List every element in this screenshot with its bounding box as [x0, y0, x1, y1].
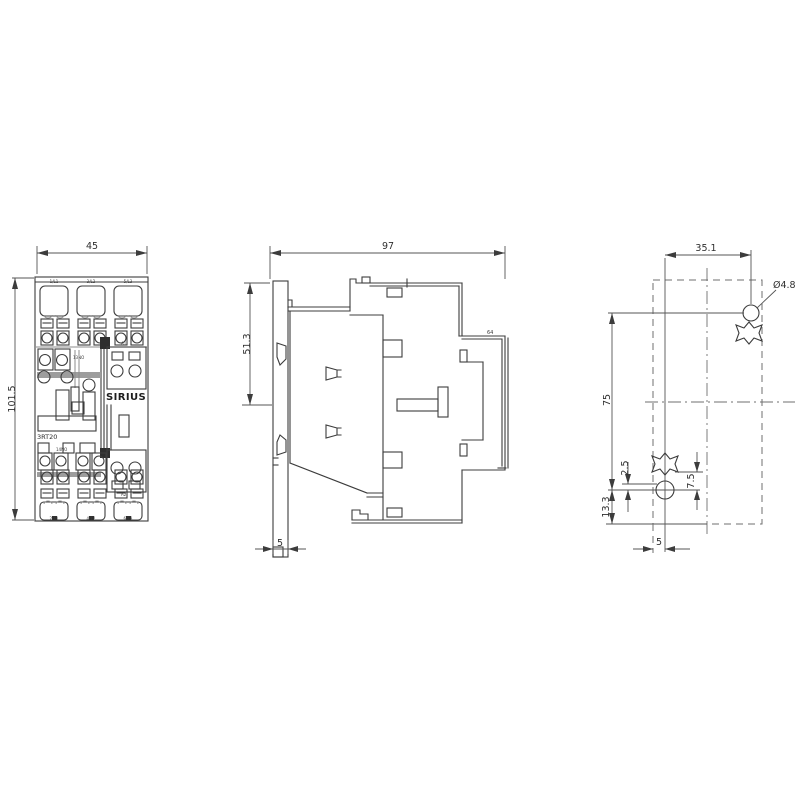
drilling-pattern: 35.1 Ø4.8 75 13.3 [601, 243, 796, 553]
drill-dim-top: 35.1 [665, 243, 751, 304]
keyhole-top [736, 305, 762, 344]
front-top-screws [41, 319, 143, 328]
side-dim-plate: 5 [255, 538, 306, 554]
dim-label-dia: Ø4.8 [773, 280, 796, 291]
front-dim-height: 101.5 [7, 278, 34, 520]
dim-label-depth: 97 [382, 241, 394, 252]
drill-dim-bottom: 13.3 [601, 490, 707, 524]
drill-dim-slot-b: 7.5 [675, 452, 703, 510]
drill-dim-edge: 5 [633, 524, 690, 553]
dim-label-width: 45 [86, 241, 98, 252]
coil-label-a1: A1 [121, 341, 127, 346]
drill-dim-slot-a: 2.5 [620, 460, 657, 512]
drill-hole-callout: Ø4.8 [757, 280, 796, 308]
side-dim-depth: 97 [270, 241, 505, 279]
dim-label-35-1: 35.1 [695, 243, 716, 254]
terminal-label-2T1: 2/T1 [50, 516, 59, 521]
front-bottom-terminals: 2/T1 4/T2 6/T3 [40, 470, 143, 521]
terminal-label-3L2: 3/L2 [87, 279, 96, 284]
front-top-clamps [41, 331, 143, 345]
dim-label-plate: 5 [277, 538, 283, 549]
terminal-label-6T3: 6/T3 [124, 516, 133, 521]
dim-label-13-3: 13.3 [601, 496, 612, 517]
aux-label-bottom: 14NO [56, 447, 67, 452]
dimensional-drawing: 45 101.5 1/L1 3/L2 5/L3 [0, 0, 800, 800]
dim-label-7-5: 7.5 [686, 473, 697, 488]
front-mechanism: 3RT20 [37, 371, 96, 453]
dim-label-2-5: 2.5 [620, 460, 631, 475]
terminal-label-4T2: 4/T2 [87, 516, 96, 521]
brand-label: SIRIUS [106, 392, 146, 403]
terminal-label-5L3: 5/L3 [124, 279, 133, 284]
model-label: 3RT20 [37, 433, 57, 441]
front-dim-width: 45 [37, 241, 147, 274]
terminal-label-1L1: 1/L1 [50, 279, 59, 284]
side-dim-front-height: 51.3 [242, 283, 272, 405]
dim-label-51-3: 51.3 [242, 333, 253, 354]
front-top-terminals: 1/L1 3/L2 5/L3 [40, 279, 143, 345]
front-bottom-screws [41, 489, 143, 498]
side-front-plate [273, 281, 292, 557]
side-view: 97 51.3 [242, 241, 508, 557]
side-body: 64 [288, 277, 508, 523]
dim-label-height: 101.5 [7, 385, 18, 412]
dim-label-rear: 64 [487, 330, 493, 336]
front-view: 45 101.5 1/L1 3/L2 5/L3 [7, 241, 148, 521]
drawing-canvas: 45 101.5 1/L1 3/L2 5/L3 [0, 0, 800, 800]
dim-label-edge: 5 [656, 537, 662, 548]
dim-label-75: 75 [602, 394, 613, 406]
